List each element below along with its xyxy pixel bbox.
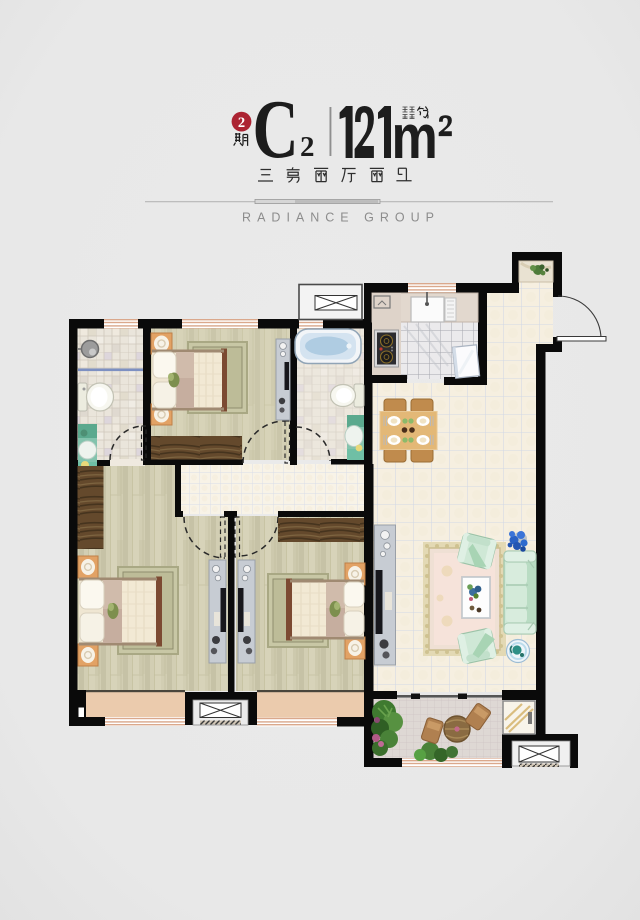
svg-text:C: C — [253, 84, 299, 176]
svg-text:2: 2 — [300, 131, 315, 163]
svg-text:m: m — [392, 103, 438, 172]
svg-text:RADIANCE GROUP: RADIANCE GROUP — [242, 211, 440, 225]
svg-text:2: 2 — [238, 115, 245, 131]
